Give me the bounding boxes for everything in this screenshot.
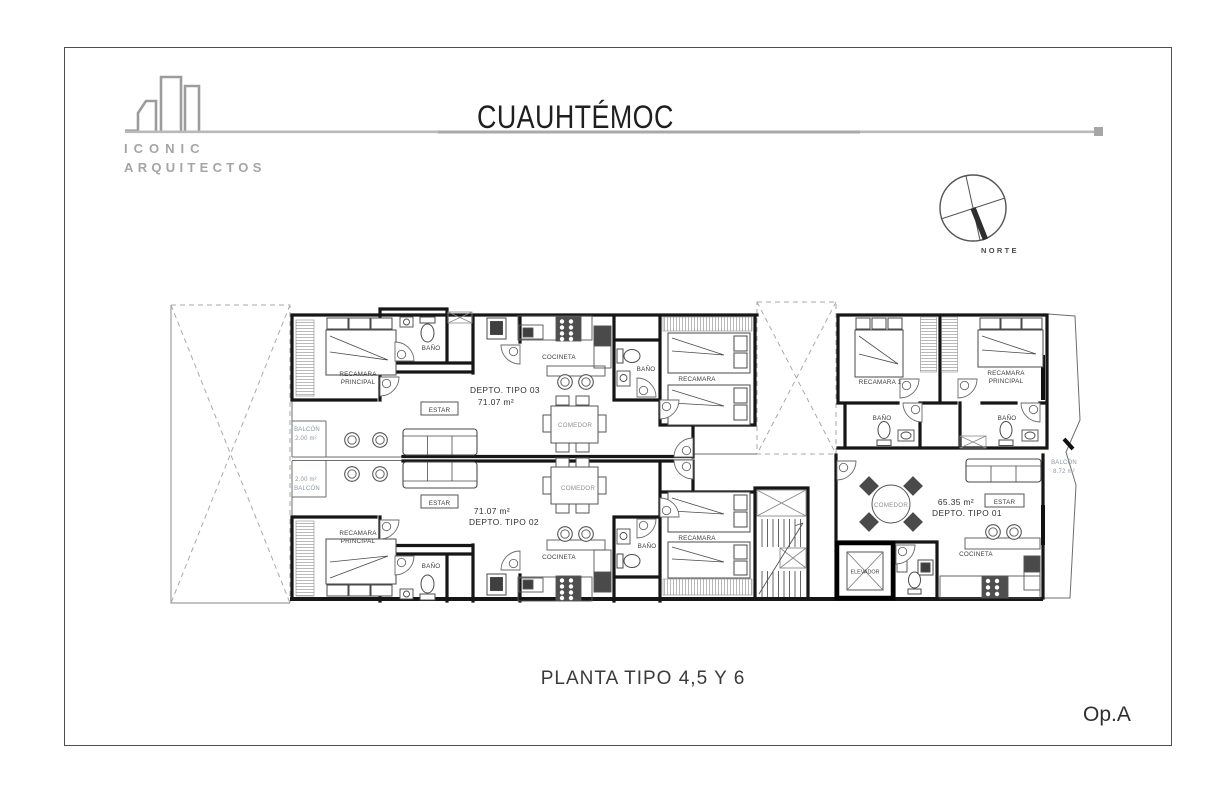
room-label-bano: BAÑO bbox=[873, 413, 892, 422]
room-label-recamara-1: RECAMARA 1 bbox=[859, 379, 902, 386]
logo-skyline-icon bbox=[125, 77, 199, 131]
room-label-bano: BAÑO bbox=[998, 413, 1017, 422]
plan-title: PLANTA TIPO 4,5 Y 6 bbox=[541, 668, 746, 690]
project-title: CUAUHTÉMOC bbox=[477, 99, 674, 136]
unit-area-depto-02: 71.07 m² bbox=[474, 506, 510, 516]
option-label: Op.A bbox=[1083, 703, 1131, 727]
patio-void-center bbox=[757, 302, 836, 454]
room-label-comedor: COMEDOR bbox=[874, 502, 909, 509]
room-label-recamara-principal: RECAMARA bbox=[339, 530, 377, 537]
room-label-bano: BAÑO bbox=[422, 343, 441, 352]
unit-label-depto-01: DEPTO. TIPO 01 bbox=[932, 508, 1002, 518]
patio-void-left bbox=[171, 305, 290, 603]
drawing-sheet: RECAMARA PRINCIPAL BAÑO COCINETA DEPTO. … bbox=[0, 0, 1224, 792]
room-label-bano: BAÑO bbox=[637, 364, 656, 373]
room-label-elevador: ELEVADOR bbox=[851, 570, 880, 576]
balcony-area: 2.00 m² bbox=[295, 436, 317, 442]
room-label-recamara-principal: PRINCIPAL bbox=[341, 538, 376, 545]
balcony-area: 8.72 m² bbox=[1053, 469, 1075, 475]
room-label-recamara-principal: PRINCIPAL bbox=[341, 379, 376, 386]
room-label-cocineta: COCINETA bbox=[542, 354, 576, 361]
unit-label-depto-03: DEPTO. TIPO 03 bbox=[470, 385, 540, 395]
room-label-bano: BAÑO bbox=[638, 541, 657, 550]
sofa-icons bbox=[403, 429, 1041, 488]
balcony-label: BALCÓN bbox=[1051, 459, 1077, 466]
balcony-label: BALCÓN bbox=[294, 485, 320, 492]
room-label-estar: ESTAR bbox=[994, 499, 1016, 506]
room-label-estar: ESTAR bbox=[429, 407, 451, 414]
compass-label: NORTE bbox=[981, 246, 1019, 255]
room-label-recamara-principal: RECAMARA bbox=[987, 370, 1025, 377]
room-label-cocineta: COCINETA bbox=[542, 554, 576, 561]
unit-area-depto-03: 71.07 m² bbox=[478, 397, 514, 407]
room-label-recamara-principal: PRINCIPAL bbox=[989, 378, 1024, 385]
compass-icon bbox=[940, 175, 1006, 241]
balcony-label: BALCÓN bbox=[294, 426, 320, 433]
unit-label-depto-02: DEPTO. TIPO 02 bbox=[469, 517, 539, 527]
balcony-area: 2.00 m² bbox=[295, 477, 317, 483]
logo-text-iconic: ICONIC bbox=[124, 141, 206, 156]
unit-area-depto-01: 65.35 m² bbox=[938, 497, 974, 507]
room-label-cocineta: COCINETA bbox=[959, 551, 993, 558]
stairs bbox=[757, 490, 806, 597]
room-label-recamara: RECAMARA bbox=[678, 535, 716, 542]
room-label-bano: BAÑO bbox=[422, 561, 441, 570]
room-label-recamara: RECAMARA bbox=[678, 376, 716, 383]
room-label-estar: ESTAR bbox=[429, 500, 451, 507]
room-label-comedor: COMEDOR bbox=[558, 422, 593, 429]
room-label-comedor: COMEDOR bbox=[561, 485, 596, 492]
logo-text-arquitectos: ARQUITECTOS bbox=[124, 160, 266, 175]
room-label-recamara-principal: RECAMARA bbox=[339, 371, 377, 378]
kitchen-icons bbox=[518, 316, 1040, 601]
